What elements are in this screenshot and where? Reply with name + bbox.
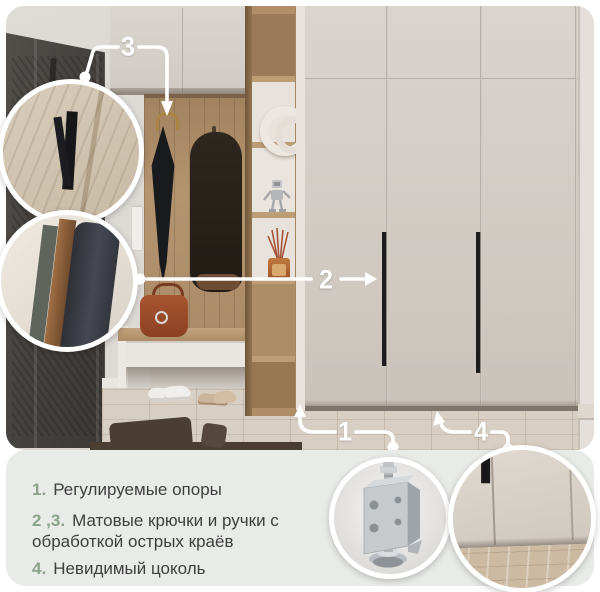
legend-item-text: Невидимый цоколь [53,559,205,578]
door-stile [34,36,37,448]
legend-item-number: 2 ,3. [32,511,65,530]
plinth-handle-tip [481,447,490,483]
cabinet-seam [182,8,183,92]
wardrobe-side-panel [296,6,305,410]
product-infographic: 3 2 1 4 1.Регулируемые опоры 2 ,3.Матовы… [0,0,600,592]
wardrobe-handle-right [476,232,480,373]
wardrobe [305,6,578,408]
wardrobe-seam [575,6,577,408]
plinth-floor [448,543,596,592]
wardrobe-plinth [305,406,578,411]
right-baseboard [578,404,594,420]
bench-drawer [126,341,250,367]
wardrobe-seam [386,6,388,408]
sneaker [164,385,192,400]
rug [201,422,228,448]
intercom [131,205,143,251]
upper-cabinets [110,6,250,94]
cubby [252,284,295,356]
robot-figurine [262,178,292,214]
wardrobe-seam [305,78,578,80]
legend-item-number: 4. [32,559,46,578]
entry-door [6,6,108,448]
umbrella-handle [156,112,179,130]
right-wall [578,6,594,450]
diffuser-label [272,264,286,276]
coat [190,132,242,292]
door-stile [96,54,99,448]
reed-diffuser-sticks [264,228,296,262]
cubby [252,362,295,408]
wardrobe-handle-left [382,232,386,366]
plinth-scene [448,445,596,592]
tower-side [245,6,252,416]
cubby [252,14,295,76]
hallway-photo [6,6,594,450]
coat-hem [196,274,240,290]
heel-shoe [213,390,236,404]
adjustable-foot-icon [334,462,446,574]
bench-shadow [126,367,250,391]
inset-foot-circle [329,457,451,579]
bag-charm [155,311,168,324]
legend-item: 4.Невидимый цоколь [32,537,205,579]
rug [109,416,193,450]
wardrobe-seam [480,6,482,408]
inset-plinth-circle [448,445,596,592]
plinth-door-face [448,445,596,549]
door-texture [12,56,102,436]
